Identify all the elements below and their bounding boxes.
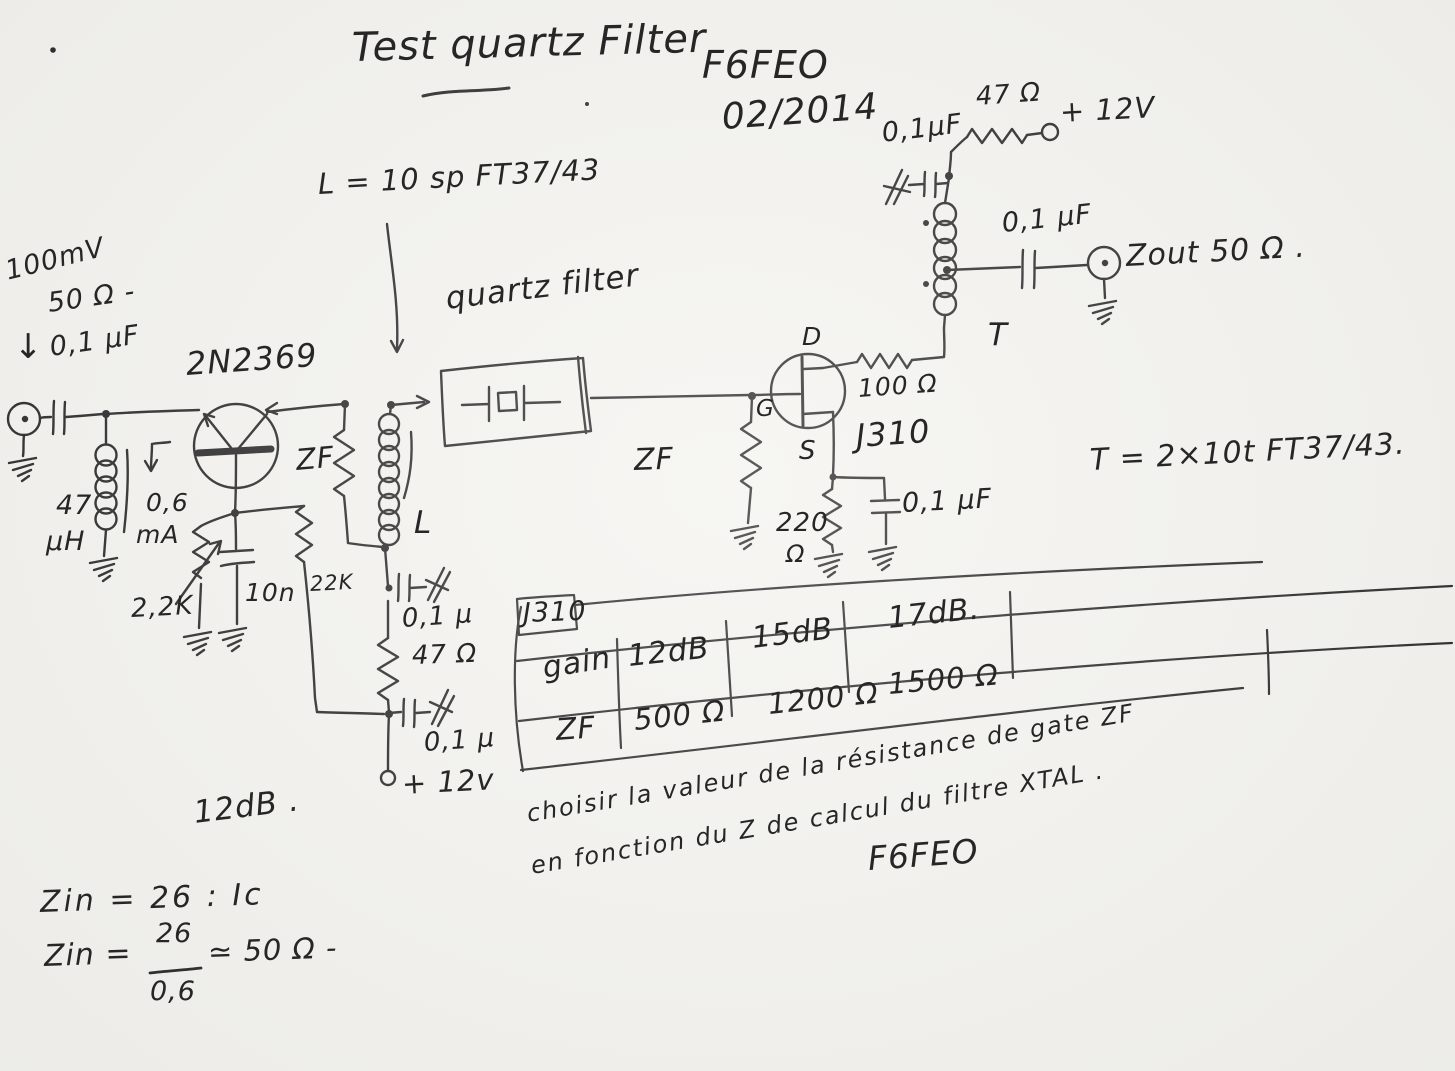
decoupling-cap1: 0,1 µ — [401, 601, 474, 632]
drain-resistor-100 — [823, 328, 944, 368]
choke-unit: µH — [46, 528, 85, 555]
transistor-2n2369 — [194, 403, 278, 512]
gate-res-label: ZF — [633, 445, 674, 476]
base-resistor-value: 22K — [309, 572, 354, 595]
output-connector — [943, 247, 1120, 324]
jfet-source-label: S — [799, 438, 817, 464]
output-transformer — [923, 172, 956, 328]
table-cell-gain-1: 12dB — [626, 634, 711, 672]
input-connector — [8, 403, 40, 481]
wire-input-to-q1 — [106, 410, 199, 414]
zin-denominator: 0,6 — [150, 978, 196, 1005]
ink-speck — [585, 102, 589, 106]
input-choke-47uh — [90, 418, 128, 581]
zin-result: ≃ 50 Ω - — [207, 933, 337, 967]
ink-speck — [50, 47, 56, 53]
zin-formula-1: Zin = 26 : Ic — [39, 880, 264, 918]
collector-coil-l — [379, 405, 412, 547]
decoupling-res: 47 Ω — [412, 641, 478, 669]
signature: F6FEO — [867, 834, 980, 875]
tank-coil-label: L — [414, 508, 432, 539]
q2-part-number: J310 — [855, 415, 932, 452]
input-coupling-cap — [40, 401, 103, 434]
callsign: F6FEO — [702, 46, 829, 84]
jfet-gate-label: G — [756, 398, 775, 421]
source-cap-value: 0,1 µF — [901, 485, 993, 517]
pot-value: 2,2K — [130, 593, 194, 622]
crystal-icon — [462, 386, 560, 421]
input-arrow-glyph: ↓ — [14, 330, 44, 364]
title-underline — [423, 88, 509, 96]
coil-note-arrow — [387, 224, 403, 352]
emitter-pot-2k2 — [176, 513, 235, 655]
choke-value: 47 — [56, 492, 92, 519]
table-row-zf-label: ZF — [555, 713, 597, 746]
source-res-unit: Ω — [786, 542, 805, 566]
zin-formula-2-lhs: Zin = — [43, 939, 132, 972]
source-res-value: 220 — [776, 510, 829, 536]
wire-collector — [267, 404, 344, 412]
node-dot — [341, 400, 349, 408]
bias-current-unit: mA — [136, 522, 179, 547]
scanned-schematic-page: Test quartz Filter F6FEO 02/2014 L = 10 … — [0, 0, 1455, 1071]
zin-numerator: 26 — [156, 920, 192, 947]
top-supply-res: 47 Ω — [975, 79, 1042, 109]
emitter-current-arrow — [145, 442, 170, 471]
tank-zf-label: ZF — [295, 443, 336, 475]
decoupling-cap2: 0,1 µ — [423, 725, 496, 756]
transformer-label: T — [988, 320, 1008, 351]
bias-current-value: 0,6 — [146, 490, 189, 515]
page-title: Test quartz Filter — [351, 19, 706, 68]
supply-top: + 12V — [1059, 93, 1156, 127]
base-cap-value: 10n — [245, 580, 296, 605]
drain-res-value: 100 Ω — [857, 370, 938, 401]
wire-filter-to-gate — [591, 395, 750, 398]
quartz-filter-box — [391, 357, 591, 446]
jfet-drain-label: D — [802, 324, 822, 349]
table-corner: J310 — [523, 598, 587, 627]
supply-bottom: + 12v — [401, 765, 495, 799]
collector-resistor-zf — [334, 404, 383, 547]
q1-part-number: 2N2369 — [185, 339, 319, 380]
base-resistor-22k — [235, 506, 384, 714]
zin-fraction-bar — [150, 968, 201, 973]
